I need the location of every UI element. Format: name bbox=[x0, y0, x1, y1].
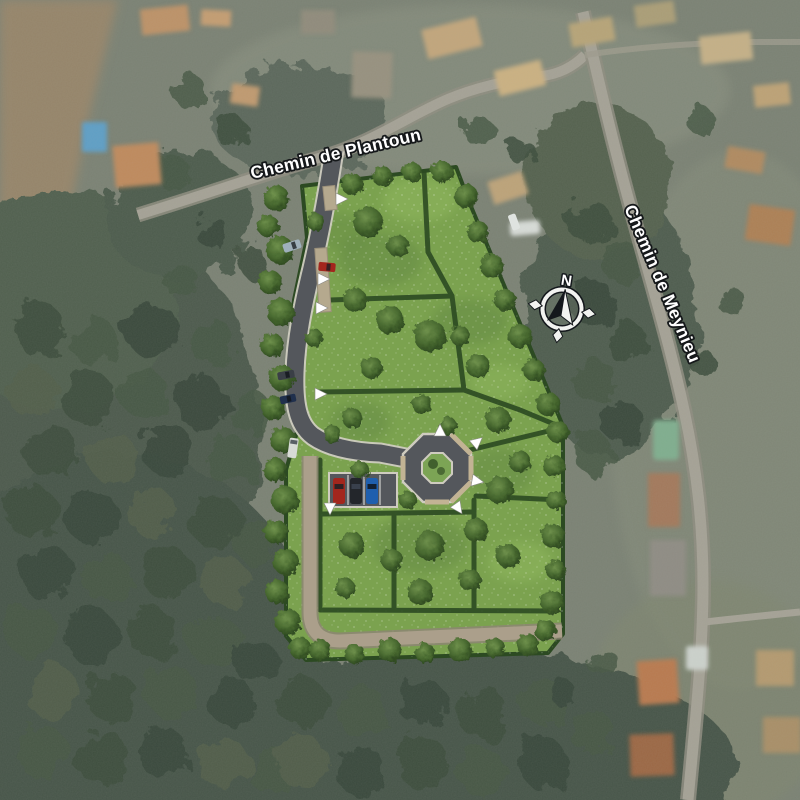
tree bbox=[407, 579, 433, 605]
tree bbox=[415, 531, 445, 561]
tree bbox=[414, 320, 446, 352]
tree bbox=[496, 544, 520, 568]
parked-car bbox=[366, 478, 378, 504]
tree bbox=[351, 461, 369, 479]
tree bbox=[450, 326, 470, 346]
tree bbox=[305, 329, 323, 347]
tree bbox=[543, 455, 565, 477]
tree bbox=[480, 254, 504, 278]
tree bbox=[485, 407, 511, 433]
tree bbox=[485, 638, 505, 658]
tree bbox=[509, 451, 531, 473]
tree bbox=[454, 184, 478, 208]
tree bbox=[339, 532, 365, 558]
tree bbox=[415, 643, 435, 663]
tree bbox=[412, 394, 432, 414]
tree bbox=[258, 270, 282, 294]
tree bbox=[335, 578, 355, 598]
tree bbox=[431, 161, 453, 183]
tree bbox=[494, 289, 516, 311]
hedge-line bbox=[320, 610, 556, 611]
tree bbox=[534, 619, 556, 641]
tree bbox=[402, 162, 422, 182]
roadside-bay bbox=[323, 185, 337, 210]
tree bbox=[536, 392, 560, 416]
tree bbox=[271, 486, 299, 514]
tree bbox=[341, 173, 363, 195]
tree bbox=[307, 213, 325, 231]
tree bbox=[263, 458, 287, 482]
tree bbox=[467, 221, 489, 243]
tree bbox=[486, 476, 514, 504]
island-shrub bbox=[437, 467, 445, 475]
tree bbox=[464, 518, 488, 542]
tree bbox=[546, 560, 566, 580]
tree bbox=[264, 520, 288, 544]
tree bbox=[541, 524, 565, 548]
tree bbox=[459, 569, 481, 591]
map-canvas: Chemin de Plantoun Chemin de Meynieu N bbox=[0, 0, 800, 800]
tree bbox=[265, 580, 289, 604]
parked-car bbox=[333, 478, 345, 504]
tree bbox=[263, 185, 289, 211]
tree bbox=[517, 634, 539, 656]
tree bbox=[540, 590, 564, 614]
tree bbox=[546, 490, 566, 510]
roundabout-island bbox=[422, 453, 452, 483]
aerial-site-plan-map: Chemin de Plantoun Chemin de Meynieu N bbox=[0, 0, 800, 800]
tree bbox=[323, 425, 341, 443]
roundabout bbox=[403, 434, 471, 502]
tree bbox=[260, 333, 284, 357]
hedge-line bbox=[322, 512, 474, 514]
tree bbox=[342, 408, 362, 428]
tree bbox=[508, 324, 532, 348]
tree bbox=[466, 354, 490, 378]
tree bbox=[376, 306, 404, 334]
tree bbox=[257, 215, 279, 237]
tree bbox=[399, 491, 417, 509]
tree bbox=[273, 549, 299, 575]
tree bbox=[387, 235, 409, 257]
parked-car bbox=[350, 478, 362, 504]
hedge-line bbox=[320, 390, 464, 392]
tree bbox=[381, 549, 403, 571]
tree bbox=[353, 207, 383, 237]
tree bbox=[345, 644, 365, 664]
tree bbox=[289, 637, 311, 659]
tree bbox=[361, 357, 383, 379]
tree bbox=[547, 421, 569, 443]
tree bbox=[378, 638, 402, 662]
tree bbox=[448, 638, 472, 662]
tree bbox=[523, 359, 545, 381]
tree bbox=[309, 639, 331, 661]
tree bbox=[275, 609, 301, 635]
parked-car bbox=[318, 262, 336, 272]
tree bbox=[267, 298, 295, 326]
island-shrub bbox=[428, 459, 438, 469]
tree bbox=[343, 288, 367, 312]
tree bbox=[372, 166, 392, 186]
